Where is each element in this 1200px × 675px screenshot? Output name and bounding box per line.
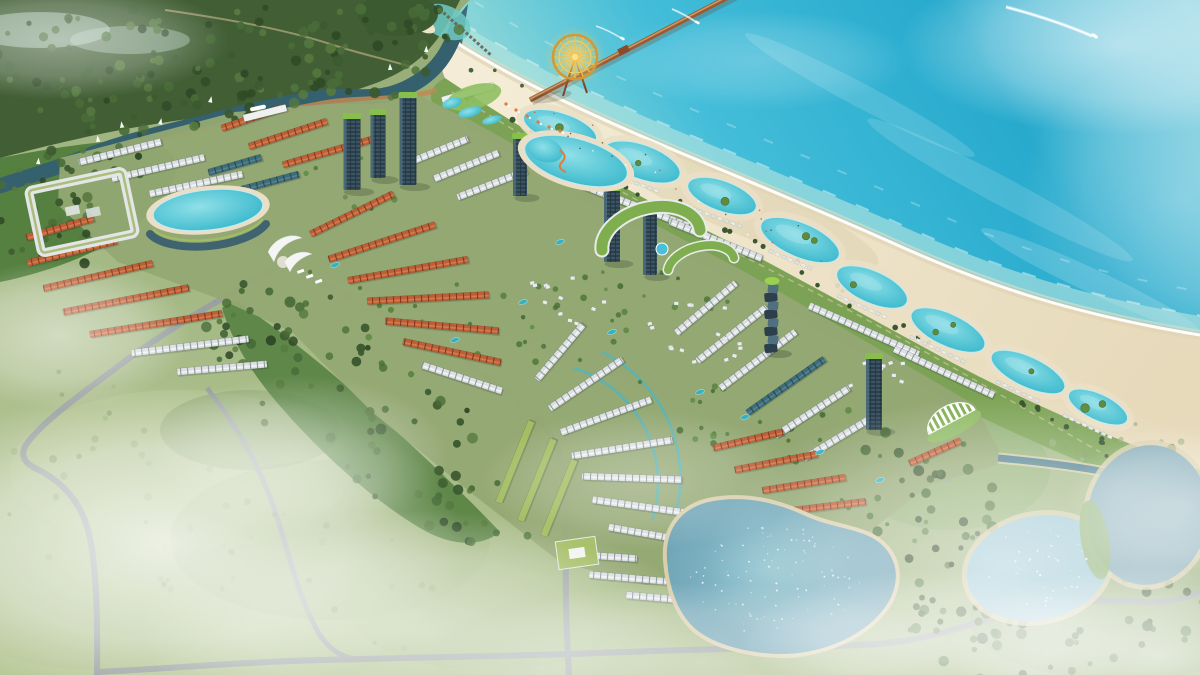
avenue-tree	[523, 340, 527, 344]
avenue-tree	[468, 322, 472, 326]
tree	[500, 293, 506, 299]
tree	[422, 54, 428, 60]
tree	[326, 352, 334, 360]
tree	[369, 87, 380, 98]
tree	[425, 389, 432, 396]
tree	[280, 344, 288, 352]
tree	[228, 51, 236, 59]
beach-umbrella	[558, 129, 561, 132]
tree	[293, 353, 302, 362]
pool-islet	[802, 233, 809, 240]
beach-person	[759, 210, 761, 212]
tree	[392, 40, 398, 46]
tree	[455, 282, 460, 287]
tree	[85, 129, 92, 136]
tree	[623, 327, 629, 333]
palm-tree	[901, 323, 906, 328]
twist-segment	[764, 343, 778, 353]
tree	[361, 324, 370, 333]
tree	[135, 153, 142, 160]
avenue-tree	[578, 358, 582, 362]
palm-tree	[510, 117, 516, 123]
tree	[284, 327, 292, 335]
beach-person	[655, 171, 657, 173]
tree	[291, 55, 301, 65]
tree	[57, 217, 63, 223]
water-sparkle	[696, 571, 698, 573]
beach-person	[592, 124, 594, 126]
tree	[237, 22, 245, 30]
palm-tree	[635, 192, 639, 196]
pool-islet	[933, 329, 939, 335]
villa	[892, 374, 896, 377]
tree	[57, 159, 66, 168]
tree	[240, 70, 248, 78]
tree	[362, 17, 368, 23]
tree	[239, 280, 247, 288]
beach-person	[570, 133, 572, 135]
tree	[332, 55, 343, 66]
tree	[68, 167, 75, 174]
tree	[451, 471, 461, 481]
tree	[131, 114, 137, 120]
tree	[621, 309, 627, 315]
tree	[343, 195, 348, 200]
tree	[332, 31, 341, 40]
tree	[423, 9, 430, 16]
tree	[104, 97, 110, 103]
tree	[314, 166, 318, 170]
tree	[580, 294, 587, 301]
beach-palm	[493, 68, 497, 72]
tree	[225, 351, 233, 359]
tree	[259, 29, 266, 36]
tree	[17, 167, 23, 173]
avenue-tree	[758, 420, 762, 424]
tree	[247, 89, 256, 98]
villa	[570, 276, 574, 279]
tree	[372, 40, 383, 51]
tree	[304, 54, 314, 64]
tree	[712, 383, 718, 389]
beach-person	[760, 218, 762, 220]
tree	[358, 350, 364, 356]
tree	[342, 326, 350, 334]
tree	[320, 22, 328, 30]
tree	[277, 92, 283, 98]
pool-islet	[721, 197, 729, 205]
ferris-wheel-hub	[572, 54, 578, 60]
avenue-tree	[413, 304, 417, 308]
palm-tree	[815, 283, 820, 288]
beach-person	[659, 169, 661, 171]
tree	[365, 345, 371, 351]
tower-green-roof	[399, 92, 418, 98]
tree	[711, 389, 715, 393]
water-sparkle	[703, 575, 705, 577]
tree	[442, 34, 448, 40]
palm-tree	[727, 229, 732, 234]
tree	[437, 8, 443, 14]
tree	[454, 24, 465, 35]
beach-person	[798, 225, 800, 227]
tree	[180, 100, 187, 107]
tree	[325, 43, 336, 54]
tree	[391, 91, 399, 99]
tower-face-highlight	[371, 114, 374, 178]
palm-tree	[799, 270, 804, 275]
tree	[411, 66, 419, 74]
tree	[582, 274, 588, 280]
beach-umbrella	[551, 128, 553, 130]
tree	[192, 100, 201, 109]
tree	[303, 171, 308, 176]
tree	[8, 248, 15, 255]
tree	[345, 88, 352, 95]
tree	[239, 288, 245, 294]
tree	[255, 17, 264, 26]
villa	[738, 346, 743, 350]
tower-green-roof	[370, 109, 387, 115]
tree	[421, 67, 430, 76]
pool-islet	[811, 238, 817, 244]
twist-segment	[767, 335, 778, 345]
tree	[610, 319, 614, 323]
tree	[311, 21, 320, 30]
beach-umbrella	[514, 108, 517, 111]
tree	[304, 38, 314, 48]
tree	[298, 90, 308, 100]
tree	[401, 59, 411, 69]
tree	[453, 484, 464, 495]
tree	[611, 339, 617, 345]
tree	[288, 336, 298, 346]
beach-umbrella	[529, 117, 531, 119]
tree	[222, 323, 230, 331]
tree	[315, 78, 325, 88]
tree	[57, 233, 62, 238]
pool-islet	[1029, 369, 1034, 374]
beach-palm	[469, 68, 474, 73]
palm-tree	[847, 304, 852, 309]
tree	[554, 302, 560, 308]
beach-person	[579, 148, 581, 150]
tower-green-roof	[865, 353, 883, 359]
villa	[737, 342, 742, 346]
tree	[408, 371, 414, 377]
beach-person	[770, 229, 772, 231]
tree	[246, 307, 253, 314]
palm-tree	[892, 325, 898, 331]
glass-atrium	[656, 243, 668, 255]
tree	[521, 315, 525, 319]
tree	[642, 294, 646, 298]
palm-tree	[722, 227, 728, 233]
tower-face-highlight	[513, 138, 516, 196]
tree	[299, 309, 309, 319]
beach-umbrella	[504, 102, 507, 105]
beach-person	[553, 113, 555, 115]
tree	[231, 313, 236, 318]
tree	[298, 27, 309, 38]
tower-green-roof	[765, 277, 780, 285]
tree	[467, 488, 473, 494]
tree	[232, 346, 238, 352]
beach-person	[772, 242, 774, 244]
tree	[37, 107, 43, 113]
beach-palm	[520, 84, 524, 88]
tree	[308, 80, 314, 86]
tree	[337, 47, 345, 55]
tree	[690, 398, 695, 403]
villa	[669, 347, 673, 350]
beach-person	[698, 201, 700, 203]
beach-umbrella	[525, 114, 528, 117]
avenue-tree	[698, 400, 702, 404]
avenue-tree	[638, 380, 642, 384]
tree	[262, 5, 268, 11]
tree	[290, 84, 298, 92]
beach-person	[821, 261, 823, 263]
tree	[19, 247, 25, 253]
tree	[328, 294, 334, 300]
twist-segment	[767, 301, 778, 311]
tree	[387, 21, 397, 31]
villa	[722, 306, 727, 310]
tree	[90, 123, 96, 129]
beach-person	[611, 155, 613, 157]
tree	[355, 4, 366, 15]
tree	[404, 19, 413, 28]
tree	[217, 319, 223, 325]
tree	[616, 312, 621, 317]
aerial-resort-render	[0, 0, 1200, 675]
beach-person	[765, 230, 767, 232]
beach-person	[625, 164, 627, 166]
twist-segment	[767, 284, 778, 294]
tree	[453, 440, 461, 448]
water-sparkle	[690, 576, 691, 577]
tree	[312, 68, 321, 77]
villa	[568, 319, 573, 323]
tree	[285, 297, 296, 308]
tree	[407, 27, 414, 34]
tree	[379, 364, 387, 372]
tree	[234, 9, 241, 16]
beach-umbrella	[540, 123, 542, 125]
tree	[137, 132, 142, 137]
tree	[274, 323, 281, 330]
tree	[467, 433, 478, 444]
tree	[12, 186, 17, 191]
beach-umbrella	[547, 125, 550, 128]
beach-umbrella	[536, 120, 539, 123]
beach-person	[747, 234, 749, 236]
villa	[602, 300, 606, 303]
palm-tree	[753, 239, 758, 244]
tree	[464, 408, 470, 414]
tree	[325, 70, 331, 76]
tree	[151, 94, 158, 101]
tree	[786, 438, 790, 442]
pool-islet	[951, 322, 956, 327]
tree	[820, 412, 826, 418]
tree	[457, 418, 465, 426]
twist-segment	[764, 326, 778, 336]
tree	[80, 147, 87, 154]
tree	[189, 121, 199, 131]
beach-umbrella	[508, 105, 510, 107]
tree	[82, 192, 92, 202]
tree	[530, 325, 535, 330]
tree	[845, 407, 852, 414]
tree	[55, 198, 63, 206]
tree	[553, 286, 559, 292]
tower-face-highlight	[344, 118, 347, 190]
twist-segment	[767, 318, 778, 328]
tree	[222, 299, 231, 308]
tree	[435, 396, 445, 406]
tree	[201, 322, 212, 333]
tree	[337, 9, 343, 15]
tree	[201, 77, 211, 87]
beach-umbrella	[562, 132, 564, 134]
beach-person	[675, 188, 677, 190]
tree	[365, 334, 372, 341]
tree	[289, 98, 300, 109]
twist-segment	[764, 309, 778, 319]
tree	[46, 146, 56, 156]
avenue-tree	[308, 270, 312, 274]
tree	[601, 270, 605, 274]
tree	[265, 287, 273, 295]
tree	[220, 330, 228, 338]
tree	[725, 299, 730, 304]
tree	[86, 107, 95, 116]
tree	[532, 358, 539, 365]
beach-person	[645, 154, 647, 156]
tree	[516, 341, 522, 347]
tree	[245, 25, 254, 34]
tree	[367, 27, 375, 35]
screenshot-canvas	[0, 0, 1200, 675]
beach-person	[602, 142, 604, 144]
tree	[388, 307, 394, 313]
villa	[674, 302, 679, 306]
beach-person	[567, 136, 569, 138]
tree	[258, 76, 263, 81]
pool-islet	[850, 282, 856, 288]
tree	[288, 42, 295, 49]
beach-person	[534, 112, 536, 114]
villa	[900, 361, 905, 365]
tree	[217, 356, 223, 362]
twist-segment	[764, 292, 778, 302]
beach-person	[592, 150, 594, 152]
pool-islet	[635, 160, 641, 166]
tree	[162, 101, 172, 111]
tree	[408, 7, 419, 18]
beach-umbrella	[518, 111, 520, 113]
tree	[75, 98, 84, 107]
tree	[291, 367, 299, 375]
tree	[72, 197, 81, 206]
tree	[352, 357, 362, 367]
mist-patch	[150, 375, 450, 535]
tower-face-highlight	[643, 213, 646, 275]
villa	[533, 283, 538, 287]
tree	[676, 277, 680, 281]
avenue-tree	[358, 286, 362, 290]
tree	[266, 335, 276, 345]
tree	[254, 81, 263, 90]
tower-face-highlight	[400, 97, 403, 185]
tree	[82, 230, 90, 238]
tree	[327, 79, 338, 90]
tower-green-roof	[343, 113, 362, 119]
tree	[617, 283, 623, 289]
tree	[541, 344, 546, 349]
beach-person	[725, 214, 727, 216]
tree	[604, 288, 608, 292]
